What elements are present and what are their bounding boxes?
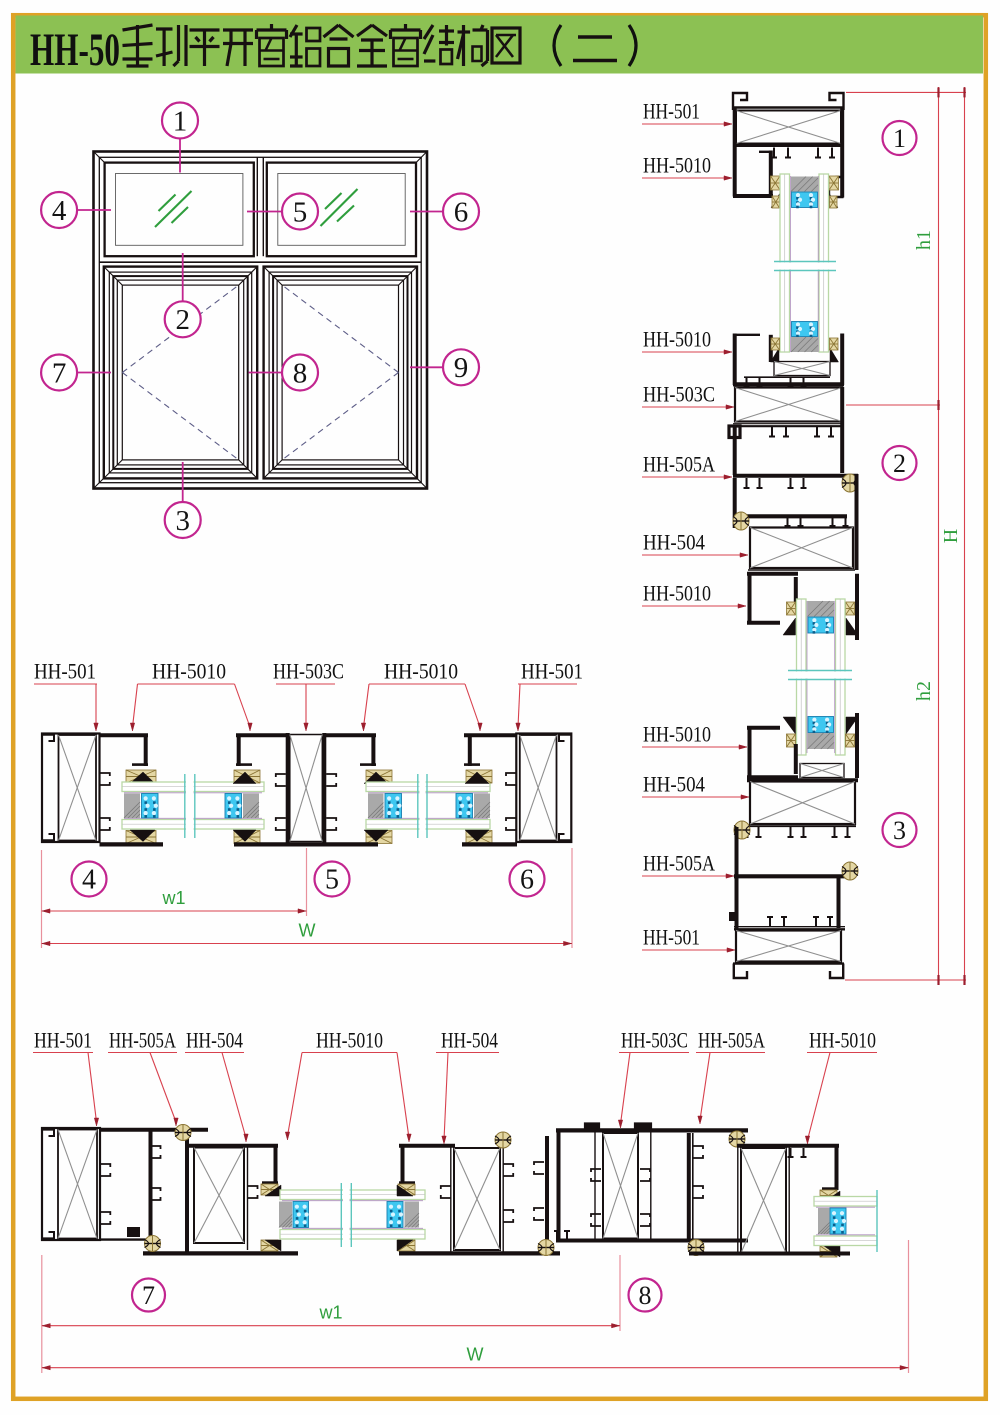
svg-text:4: 4 bbox=[82, 865, 96, 896]
svg-text:HH-5010: HH-5010 bbox=[643, 722, 711, 747]
svg-text:HH-505A: HH-505A bbox=[109, 1028, 176, 1053]
svg-text:4: 4 bbox=[52, 195, 67, 227]
svg-text:HH-503C: HH-503C bbox=[273, 659, 344, 684]
svg-text:HH-5010: HH-5010 bbox=[152, 659, 226, 684]
svg-text:7: 7 bbox=[142, 1281, 155, 1310]
svg-text:HH-504: HH-504 bbox=[186, 1028, 243, 1053]
svg-text:6: 6 bbox=[520, 865, 534, 896]
svg-text:W: W bbox=[467, 1345, 484, 1365]
svg-text:HH-501: HH-501 bbox=[521, 659, 583, 684]
svg-text:5: 5 bbox=[325, 865, 339, 896]
svg-text:h2: h2 bbox=[913, 681, 935, 701]
svg-text:H: H bbox=[940, 529, 962, 543]
svg-text:HH-505A: HH-505A bbox=[698, 1028, 765, 1053]
svg-text:1: 1 bbox=[893, 124, 906, 153]
svg-text:HH-5010: HH-5010 bbox=[316, 1028, 383, 1053]
svg-text:HH-504: HH-504 bbox=[643, 530, 705, 555]
svg-text:HH-5010: HH-5010 bbox=[809, 1028, 876, 1053]
svg-text:w1: w1 bbox=[318, 1303, 342, 1323]
svg-text:HH-50: HH-50 bbox=[30, 24, 120, 76]
svg-text:w1: w1 bbox=[161, 888, 185, 908]
svg-text:HH-505A: HH-505A bbox=[643, 452, 715, 477]
svg-text:h1: h1 bbox=[913, 230, 935, 250]
svg-text:HH-503C: HH-503C bbox=[621, 1028, 688, 1053]
svg-text:HH-501: HH-501 bbox=[34, 1028, 92, 1053]
svg-text:HH-503C: HH-503C bbox=[643, 382, 715, 407]
svg-text:HH-501: HH-501 bbox=[34, 659, 96, 684]
svg-text:HH-504: HH-504 bbox=[643, 772, 705, 797]
svg-text:9: 9 bbox=[454, 352, 469, 384]
svg-text:1: 1 bbox=[173, 105, 188, 137]
svg-text:HH-504: HH-504 bbox=[441, 1028, 498, 1053]
svg-text:HH-505A: HH-505A bbox=[643, 851, 715, 876]
svg-text:8: 8 bbox=[293, 357, 308, 389]
svg-text:HH-5010: HH-5010 bbox=[643, 327, 711, 352]
svg-text:HH-501: HH-501 bbox=[643, 99, 700, 124]
svg-text:2: 2 bbox=[893, 449, 906, 478]
svg-text:HH-5010: HH-5010 bbox=[384, 659, 458, 684]
svg-text:5: 5 bbox=[293, 196, 308, 228]
svg-text:2: 2 bbox=[175, 304, 190, 336]
svg-text:7: 7 bbox=[52, 357, 67, 389]
svg-text:HH-5010: HH-5010 bbox=[643, 153, 711, 178]
svg-text:3: 3 bbox=[175, 505, 190, 537]
svg-text:8: 8 bbox=[639, 1281, 652, 1310]
svg-text:W: W bbox=[299, 921, 316, 941]
svg-text:6: 6 bbox=[454, 196, 469, 228]
svg-text:HH-501: HH-501 bbox=[643, 925, 700, 950]
svg-text:3: 3 bbox=[893, 816, 906, 845]
svg-text:HH-5010: HH-5010 bbox=[643, 581, 711, 606]
